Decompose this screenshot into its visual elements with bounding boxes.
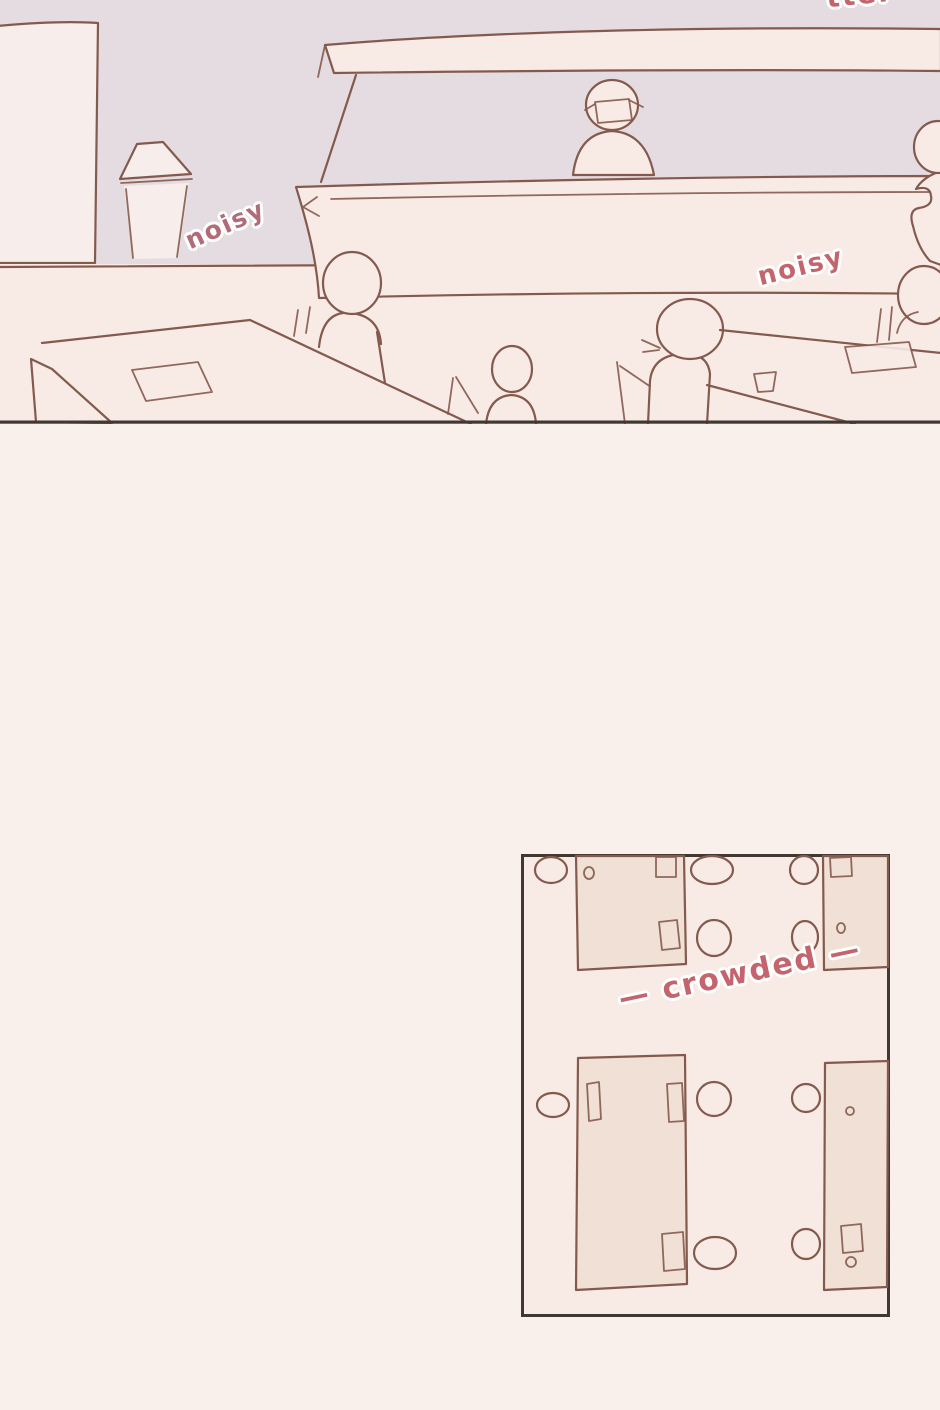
face-mask bbox=[595, 99, 632, 123]
floorplan-table-bottom-left bbox=[576, 1055, 687, 1290]
customer-center-head bbox=[492, 346, 532, 392]
whiteboard-partition bbox=[0, 22, 98, 263]
customer-right-body bbox=[648, 354, 710, 424]
customer-left-head bbox=[323, 252, 381, 314]
cup-on-table bbox=[754, 372, 776, 392]
service-counter bbox=[296, 176, 940, 298]
tablet-on-right-table bbox=[845, 342, 916, 373]
customer-right-head bbox=[657, 299, 723, 359]
trash-bin-body-fill bbox=[124, 183, 189, 259]
cafe-scene-drawing bbox=[0, 0, 940, 424]
floorplan-panel: — crowded — bbox=[521, 854, 891, 1318]
floorplan-drawing bbox=[521, 854, 891, 1318]
floorplan-table-top-left bbox=[576, 856, 686, 970]
cafe-scene-panel: tter noisy noisy bbox=[0, 0, 940, 424]
panel-bottom-border bbox=[0, 421, 940, 424]
customer-far-right-head bbox=[898, 266, 940, 324]
floorplan-table-bottom-right bbox=[824, 1061, 888, 1290]
